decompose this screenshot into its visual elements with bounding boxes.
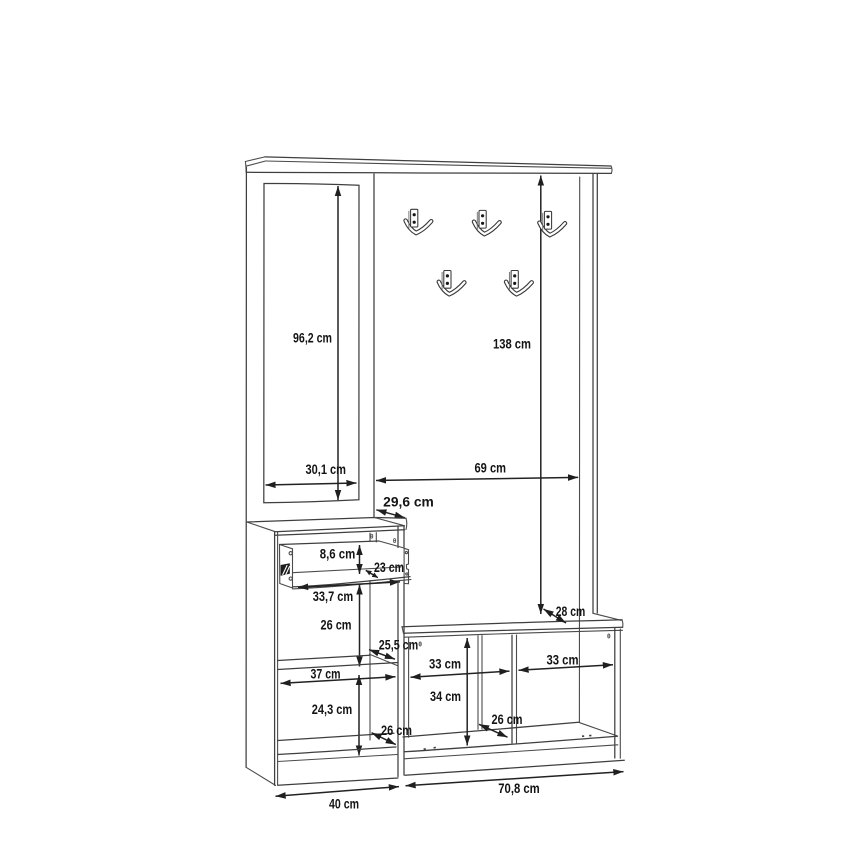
svg-text:70,8 cm: 70,8 cm — [498, 781, 540, 796]
svg-text:28 cm: 28 cm — [556, 604, 586, 619]
svg-text:26 cm: 26 cm — [321, 618, 352, 633]
svg-text:30,1 cm: 30,1 cm — [306, 462, 347, 477]
svg-text:25,5 cm: 25,5 cm — [379, 638, 419, 653]
svg-text:40 cm: 40 cm — [329, 797, 359, 812]
svg-text:8,6 cm: 8,6 cm — [320, 547, 356, 562]
svg-text:29,6 cm: 29,6 cm — [383, 495, 434, 510]
svg-text:34 cm: 34 cm — [430, 689, 461, 704]
svg-text:26 cm: 26 cm — [492, 712, 523, 727]
svg-text:96,2 cm: 96,2 cm — [293, 331, 332, 346]
svg-text:23 cm: 23 cm — [374, 560, 404, 575]
svg-text:138 cm: 138 cm — [493, 337, 531, 352]
svg-text:33 cm: 33 cm — [547, 653, 579, 668]
svg-text:26 cm: 26 cm — [381, 723, 412, 738]
svg-text:33,7 cm: 33,7 cm — [313, 589, 354, 604]
svg-text:33 cm: 33 cm — [429, 657, 461, 672]
svg-text:37 cm: 37 cm — [311, 667, 341, 682]
svg-text:24,3 cm: 24,3 cm — [312, 702, 353, 717]
svg-text:69 cm: 69 cm — [475, 461, 507, 476]
